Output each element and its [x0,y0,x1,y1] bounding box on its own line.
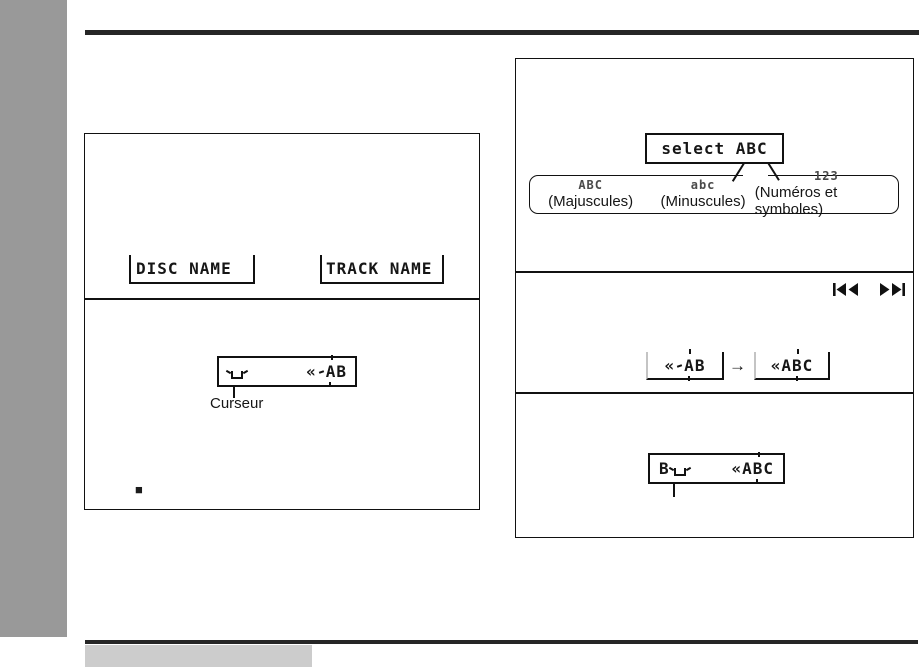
cursor-label: Curseur [210,395,263,412]
note-bullet: ■ [135,483,143,496]
next-track-icon [878,283,905,296]
left-panel-divider [85,298,479,300]
sequence-before-display: «AB [646,352,724,380]
callout-caret [743,173,768,178]
cursor-display-text: «AB [306,362,347,381]
select-mode-display: select ABC [645,133,784,164]
charset-lowercase-label: (Minuscules) [661,193,746,210]
entry-charset-prefix: «A [731,459,752,478]
footer-highlight-box [85,645,312,667]
charset-legend-box: ABC (Majuscules) abc (Minuscules) 123 (N… [529,175,899,214]
sequence-before-text: «AB [665,356,706,375]
disc-name-display-text: DISC NAME [136,259,232,278]
sequence-after-display: «ABC [754,352,830,380]
cursor-display: «AB [217,356,357,387]
entry-charset-text: «ABC [731,459,774,478]
charset-numbers-lcd: 123 [814,170,839,184]
cursor-display-blink-char: A [326,362,337,381]
blinking-cursor-icon [231,371,243,379]
blink-marks [319,370,324,374]
entry-cursor-pointer-line [673,484,675,497]
charset-lowercase-lcd: abc [691,179,716,193]
right-panel-divider-2 [516,392,913,394]
entry-charset-blink-char: B [753,459,764,478]
charset-numbers-label: (Numéros et symboles) [755,184,898,219]
track-name-display: TRACK NAME [320,255,444,284]
sequence-after-blink-char: B [792,356,803,375]
page-edge-tab [0,0,67,637]
charset-uppercase-lcd: ABC [578,179,603,193]
blinking-cursor-icon [674,468,686,476]
bottom-rule [85,640,918,644]
right-panel-divider-1 [516,271,913,273]
right-instruction-panel: select ABC ABC (Majuscules) abc (Minuscu… [515,58,914,538]
charset-lowercase: abc (Minuscules) [651,179,754,210]
entry-result-display: B «ABC [648,453,785,484]
left-instruction-panel: DISC NAME TRACK NAME «AB Curseur ■ [84,133,480,510]
sequence-after-text: «ABC [771,356,814,375]
sequence-after-suffix: C [803,356,814,375]
track-name-display-text: TRACK NAME [326,259,432,278]
charset-uppercase-label: (Majuscules) [548,193,633,210]
sequence-before-prefix: « [665,356,676,375]
blink-marks [677,364,682,368]
arrow-icon: → [729,356,746,376]
entry-charset-suffix: C [763,459,774,478]
cursor-display-prefix: « [306,362,317,381]
entry-typed-group: B [659,459,690,478]
disc-name-display: DISC NAME [129,255,255,284]
sequence-after-prefix: «A [771,356,792,375]
sequence-before-blink-char: A [684,356,695,375]
previous-track-icon [833,283,860,296]
charset-uppercase: ABC (Majuscules) [530,179,651,210]
sequence-before-suffix: B [695,356,706,375]
top-rule [85,30,919,35]
manual-page: DISC NAME TRACK NAME «AB Curseur ■ selec… [0,0,919,667]
select-mode-display-text: select ABC [661,139,767,158]
cursor-display-suffix: B [336,362,347,381]
